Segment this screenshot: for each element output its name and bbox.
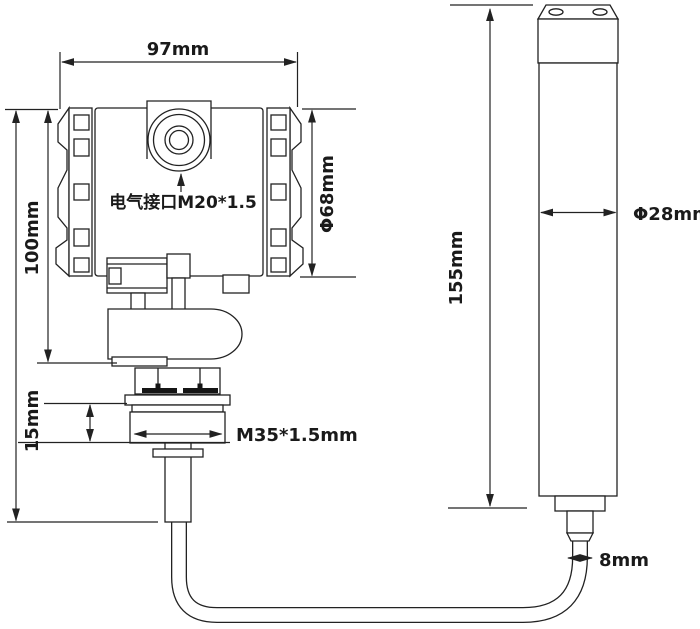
process-flange [108, 309, 242, 359]
dimension-housing-width: 97mm [60, 39, 298, 109]
label-housing-height: 100mm [22, 200, 43, 275]
probe-cable-gland [567, 511, 593, 533]
flange-underplate [112, 357, 167, 366]
neck-block [167, 254, 190, 278]
seal-strip-right [183, 388, 218, 393]
dimension-housing-diameter: Φ68mm [300, 109, 356, 277]
bolt-head [198, 384, 203, 389]
mounting-flange [125, 395, 230, 405]
label-housing-width: 97mm [147, 39, 210, 60]
electrical-port-outer-ring [148, 109, 210, 171]
label-probe-length: 155mm [446, 230, 467, 305]
bolt-head [156, 384, 161, 389]
label-electrical-port: 电气接口M20*1.5 [109, 192, 257, 213]
body-step-right [223, 275, 249, 293]
label-thread-spec: M35*1.5mm [236, 425, 358, 446]
transmitter-housing [56, 101, 303, 522]
label-cable-diameter: 8mm [599, 550, 649, 571]
neck-support-left [131, 293, 145, 310]
probe-end-step [555, 496, 605, 511]
probe-cap [538, 19, 618, 63]
thread-nut [130, 412, 225, 443]
seal-strip-left [142, 388, 177, 393]
flange-neck [132, 405, 223, 412]
connection-cable [179, 516, 580, 615]
label-flange-height: 15mm [22, 390, 43, 453]
probe-gland-taper [567, 533, 593, 541]
probe-top-face [538, 5, 618, 19]
stem-collar [153, 449, 203, 457]
neck-stem [172, 278, 185, 310]
label-housing-diameter: Φ68mm [317, 155, 338, 233]
label-probe-diameter: Φ28mm [633, 204, 700, 225]
housing-left-flange-profile [56, 108, 69, 276]
dimension-drawing: 97mm 100mm Φ68mm 电气接口M20*1.5 15mm M35*1.… [0, 0, 700, 629]
dimension-probe-length: 155mm [446, 5, 533, 508]
housing-right-flange-profile [290, 108, 303, 276]
submersible-probe [538, 5, 618, 541]
probe-body [539, 63, 617, 496]
technical-drawing-canvas: 97mm 100mm Φ68mm 电气接口M20*1.5 15mm M35*1.… [0, 0, 700, 629]
